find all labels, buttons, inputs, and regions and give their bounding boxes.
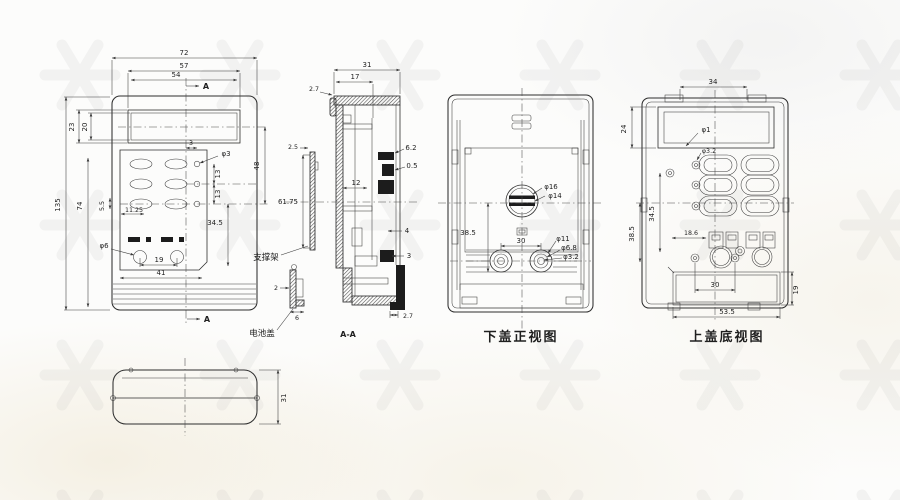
dim-31-outline: 31 (280, 394, 288, 403)
dim-74: 74 (76, 201, 84, 210)
engineering-drawing-page: 72 57 54 A 23 20 135 74 5.5 11.25 3 (0, 0, 900, 500)
dim-18p6: 18.6 (684, 230, 698, 237)
dim-19: 19 (155, 256, 164, 264)
dim-72: 72 (180, 49, 189, 57)
section-arrow-top: A (203, 82, 210, 91)
dim-phi16: φ16 (544, 183, 558, 191)
dim-2: 2 (274, 285, 278, 292)
dim-53p5: 53.5 (719, 308, 735, 316)
dim-13a: 13 (214, 170, 222, 179)
section-title: A-A (340, 330, 357, 339)
dim-5p5: 5.5 (99, 201, 106, 211)
top-cover-title: 上盖底视图 (689, 329, 764, 345)
dim-phi14: φ14 (548, 192, 562, 200)
dim-3-wall: 3 (407, 252, 411, 260)
dim-phi6p8: φ6.8 (561, 244, 577, 252)
dim-20: 20 (81, 123, 89, 132)
dim-38p5-bc: 38.5 (460, 229, 476, 237)
dim-41: 41 (157, 269, 166, 277)
section-arrow-bottom: A (204, 315, 211, 324)
dim-11p25: 11.25 (125, 207, 143, 214)
dim-3: 3 (189, 140, 193, 147)
dim-0p5: 0.5 (406, 162, 417, 170)
dim-23: 23 (68, 123, 76, 132)
dim-34p5: 34.5 (207, 219, 223, 227)
dim-phi3p2-keys: φ3.2 (702, 148, 716, 155)
label-support-bracket: 支撑架 (253, 252, 279, 263)
dim-phi3p2: φ3.2 (563, 253, 579, 261)
dim-phi3: φ3 (221, 150, 230, 158)
dim-57: 57 (180, 62, 189, 70)
dim-2p7-bottom: 2.7 (403, 313, 413, 320)
dim-12: 12 (352, 179, 361, 187)
dim-135: 135 (54, 198, 62, 211)
dim-6p2: 6.2 (405, 144, 416, 152)
dim-31: 31 (363, 61, 372, 69)
dim-30-tc: 30 (711, 281, 720, 289)
dim-phi6: φ6 (99, 242, 109, 250)
dim-48: 48 (253, 162, 261, 171)
dim-2p5: 2.5 (288, 144, 298, 151)
dim-phi1: φ1 (701, 126, 710, 134)
dim-34p5-tc: 34.5 (648, 206, 656, 222)
dim-54: 54 (172, 71, 181, 79)
dim-phi11: φ11 (556, 235, 570, 243)
label-battery-cover: 电池盖 (249, 328, 275, 339)
dim-13b: 13 (214, 190, 222, 199)
dim-19-tc: 19 (792, 286, 800, 295)
dim-6: 6 (295, 315, 299, 322)
dim-34: 34 (709, 78, 718, 86)
bottom-cover-title: 下盖正视图 (483, 329, 558, 345)
dim-4: 4 (405, 227, 410, 235)
dim-61p75: 61.75 (278, 198, 298, 206)
drawing-svg: 72 57 54 A 23 20 135 74 5.5 11.25 3 (0, 0, 900, 500)
dim-24: 24 (620, 124, 628, 133)
dim-38p5-tc: 38.5 (628, 226, 636, 242)
dim-17: 17 (351, 73, 360, 81)
dim-30-bc: 30 (517, 237, 526, 245)
dim-2p7-top: 2.7 (309, 86, 319, 93)
